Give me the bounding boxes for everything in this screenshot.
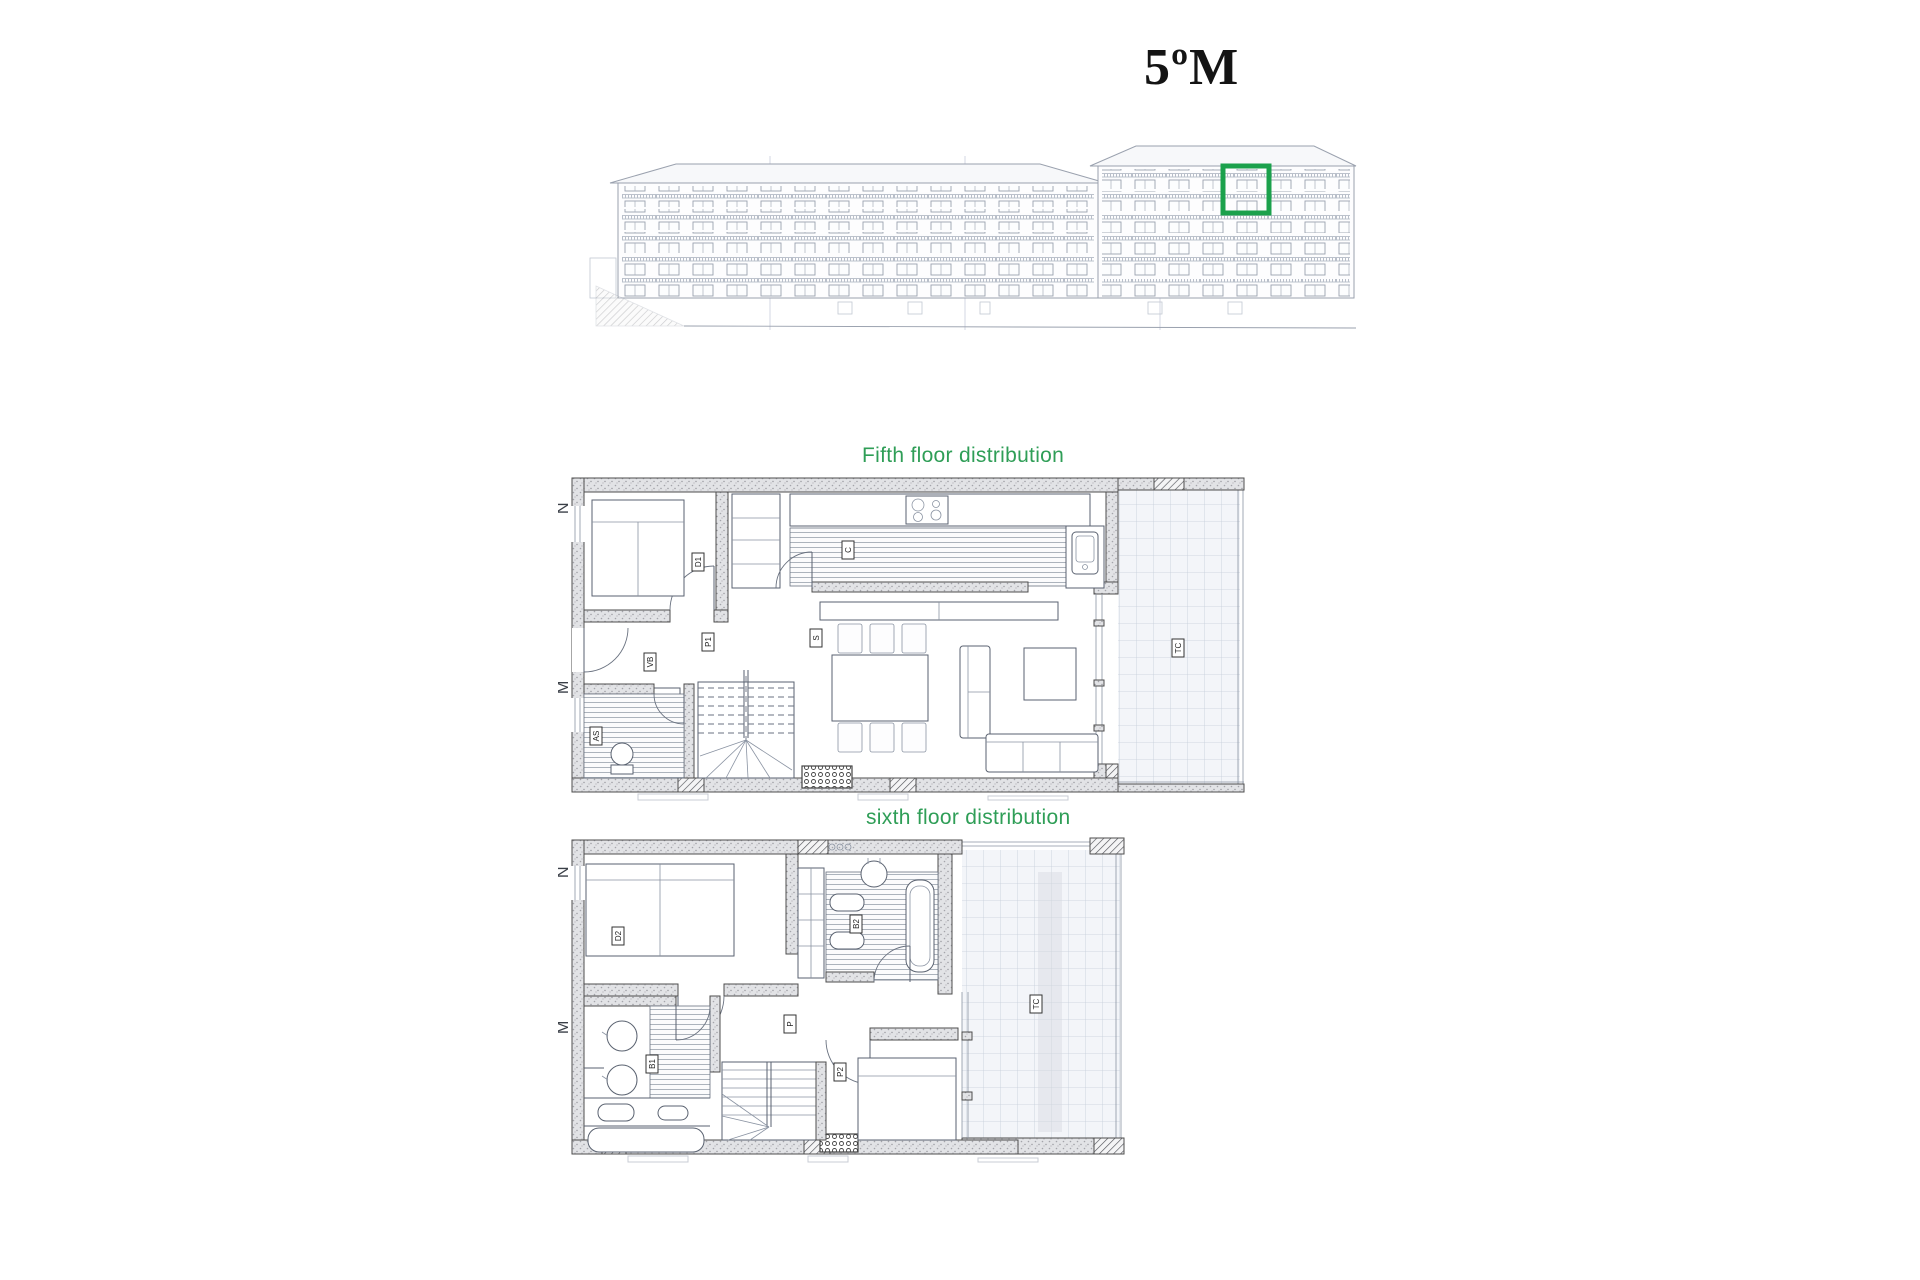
wc-label: AS [590, 727, 602, 745]
sixth-floor-heading: sixth floor distribution [866, 806, 1070, 830]
bedroom: D1 [584, 492, 728, 622]
wall-letter: M [558, 681, 572, 694]
bathroom-1: B1 [584, 996, 720, 1152]
svg-text:P2: P2 [836, 1067, 845, 1077]
living-dining: S [810, 602, 1098, 772]
svg-text:B2: B2 [852, 919, 861, 929]
svg-text:P: P [786, 1021, 795, 1026]
tower-roof [1090, 146, 1356, 166]
svg-text:S: S [812, 635, 821, 640]
svg-text:AS: AS [592, 731, 601, 742]
terrace-label: TC [1172, 639, 1184, 657]
svg-text:P1: P1 [704, 637, 713, 647]
bedroom2-label: P2 [834, 1063, 846, 1081]
bed [858, 1058, 956, 1140]
building-elevation [588, 136, 1360, 332]
bathroom-2: B2 [826, 858, 938, 982]
north-letter: N [558, 502, 572, 514]
shaft-grid [802, 766, 852, 788]
hall-label: P1 [702, 633, 714, 651]
dining-table [832, 655, 928, 721]
bedroom-label: D1 [692, 553, 704, 571]
toilet [830, 894, 864, 911]
toilet [611, 743, 633, 765]
hall: P [784, 1015, 796, 1033]
cropped-lower-row [638, 794, 1068, 800]
wall-letter: M [558, 1021, 572, 1034]
page-title: 5ºM [1144, 38, 1239, 97]
hall-label: P [784, 1015, 796, 1033]
svg-text:D1: D1 [694, 556, 703, 567]
svg-text:C: C [844, 547, 853, 553]
washbasin-1 [607, 1021, 637, 1051]
living-label: S [810, 629, 822, 647]
cropped-lower-row [628, 1156, 1038, 1162]
svg-text:TC: TC [1032, 998, 1041, 1009]
kitchen-label: C [842, 541, 854, 559]
bedroom-2: P2 [816, 1028, 958, 1140]
pantry-column [732, 494, 780, 588]
fifth-floor-plan: TC [558, 470, 1250, 802]
terrace-label: TC [1030, 995, 1042, 1013]
kitchen: C [732, 494, 1104, 592]
svg-text:B1: B1 [648, 1059, 657, 1069]
washbasin [861, 861, 887, 887]
svg-text:D2: D2 [614, 930, 623, 941]
svg-text:TC: TC [1174, 642, 1183, 653]
bath1-label: B1 [646, 1055, 658, 1073]
armchair [1024, 648, 1076, 700]
washbasin-2 [607, 1065, 637, 1095]
toilet [598, 1104, 634, 1121]
svg-text:VB: VB [646, 657, 655, 668]
bathroom: AS [584, 684, 694, 778]
main-block [610, 164, 1106, 298]
bidet [658, 1106, 688, 1120]
stairs [698, 670, 852, 788]
bathtub [588, 1128, 704, 1152]
north-letter: N [558, 866, 572, 878]
bidet [830, 932, 864, 949]
bedroom1-label: D2 [612, 927, 624, 945]
hob [906, 496, 948, 524]
main-roof [610, 164, 1106, 183]
terrace: TC [962, 838, 1124, 1154]
sixth-floor-plan: TC D [558, 832, 1133, 1164]
bath2-label: B2 [850, 915, 862, 933]
terrace: TC [1118, 480, 1244, 792]
plan-sheet: 5ºM [0, 0, 1920, 1280]
sofa-horizontal [986, 734, 1098, 772]
entry-label: VB [644, 653, 656, 671]
fifth-floor-heading: Fifth floor distribution [862, 444, 1064, 468]
